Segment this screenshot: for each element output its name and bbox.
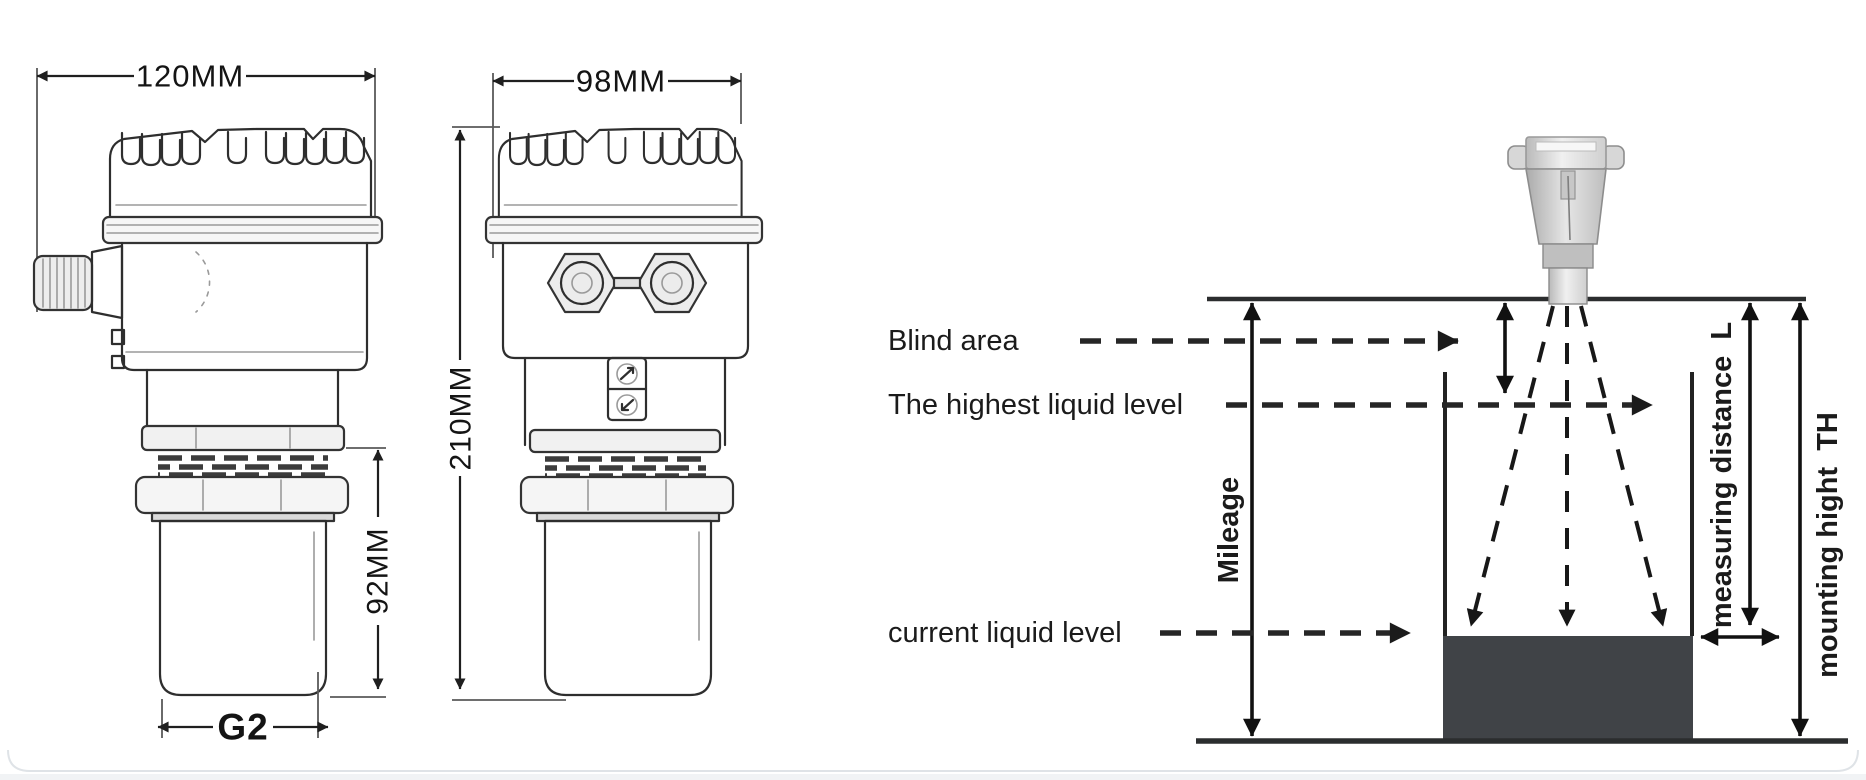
thread: [158, 458, 328, 475]
thread-dimension: G2: [158, 672, 328, 748]
cable-gland-right: [638, 254, 706, 312]
mounting-height-label: mounting hight TH: [1812, 412, 1844, 678]
cable-gland-left: [548, 254, 616, 312]
measuring-schematic: Blind area The highest liquid level curr…: [888, 137, 1848, 742]
housing-cap: [499, 129, 742, 217]
collar-ring: [142, 426, 344, 450]
sensor-neck: [1543, 244, 1593, 268]
liquid-box: [1443, 636, 1693, 742]
side-view-drawing: 120MM: [34, 58, 396, 748]
mileage-label: Mileage: [1213, 477, 1245, 583]
thread-band: [152, 513, 334, 521]
beam-left: [1471, 306, 1553, 626]
sensor-probe: [1549, 268, 1587, 304]
process-connection: [136, 370, 348, 695]
ultrasonic-beams: [1471, 306, 1663, 626]
hex-nut: [521, 477, 733, 513]
thread-size-text: G2: [217, 707, 268, 748]
front-width-dimension: 98MM: [576, 64, 666, 99]
housing-body: [503, 243, 748, 358]
page-bottom-strip: [0, 774, 1866, 780]
blind-area-label: Blind area: [888, 325, 1019, 357]
hex-nut: [136, 477, 348, 513]
lid-flange: [103, 217, 382, 243]
transducer-horn: [545, 521, 711, 695]
measuring-distance-label: measuring distance L: [1706, 322, 1738, 628]
beam-right: [1581, 306, 1663, 626]
housing-cap: [110, 129, 371, 217]
total-height-text: 210MM: [445, 365, 478, 470]
process-connection: [521, 430, 733, 695]
housing-body: [122, 243, 367, 370]
total-height-dimension: 210MM: [442, 127, 566, 700]
level-sensor-diagram: 120MM: [0, 0, 1866, 780]
front-view-drawing: 98MM: [442, 63, 762, 700]
cable-gland: [34, 246, 122, 318]
current-level-label: current liquid level: [888, 617, 1122, 649]
side-width-dimension: 120MM: [136, 59, 244, 94]
lid-flange: [486, 217, 762, 243]
card-bottom-edge: [8, 750, 1858, 771]
transducer-height-text: 92MM: [362, 527, 395, 614]
gland-connector: [614, 278, 640, 288]
collar-ring: [530, 430, 720, 452]
adjustment-tag: [608, 358, 646, 420]
sensor-cap-window: [1536, 142, 1596, 151]
highest-level-label: The highest liquid level: [888, 389, 1183, 421]
sensor-pictogram: [1508, 137, 1624, 304]
thread-band: [537, 513, 719, 521]
transducer-horn: [160, 521, 326, 695]
thread: [545, 459, 706, 476]
